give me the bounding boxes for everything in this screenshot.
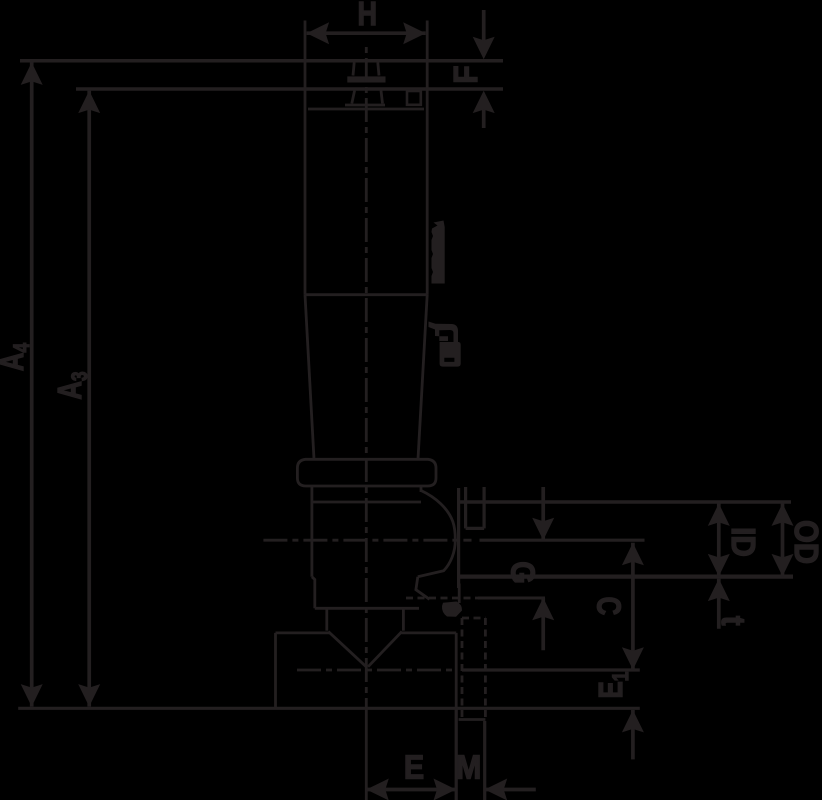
svg-text:G: G (504, 561, 541, 584)
svg-text:OD: OD (788, 520, 822, 564)
svg-text:H: H (358, 0, 378, 33)
svg-text:t: t (715, 616, 752, 626)
svg-text:F: F (448, 66, 485, 84)
svg-text:ID: ID (725, 527, 762, 557)
svg-text:M: M (456, 748, 481, 785)
svg-text:C: C (590, 597, 627, 616)
svg-text:E: E (404, 748, 424, 785)
